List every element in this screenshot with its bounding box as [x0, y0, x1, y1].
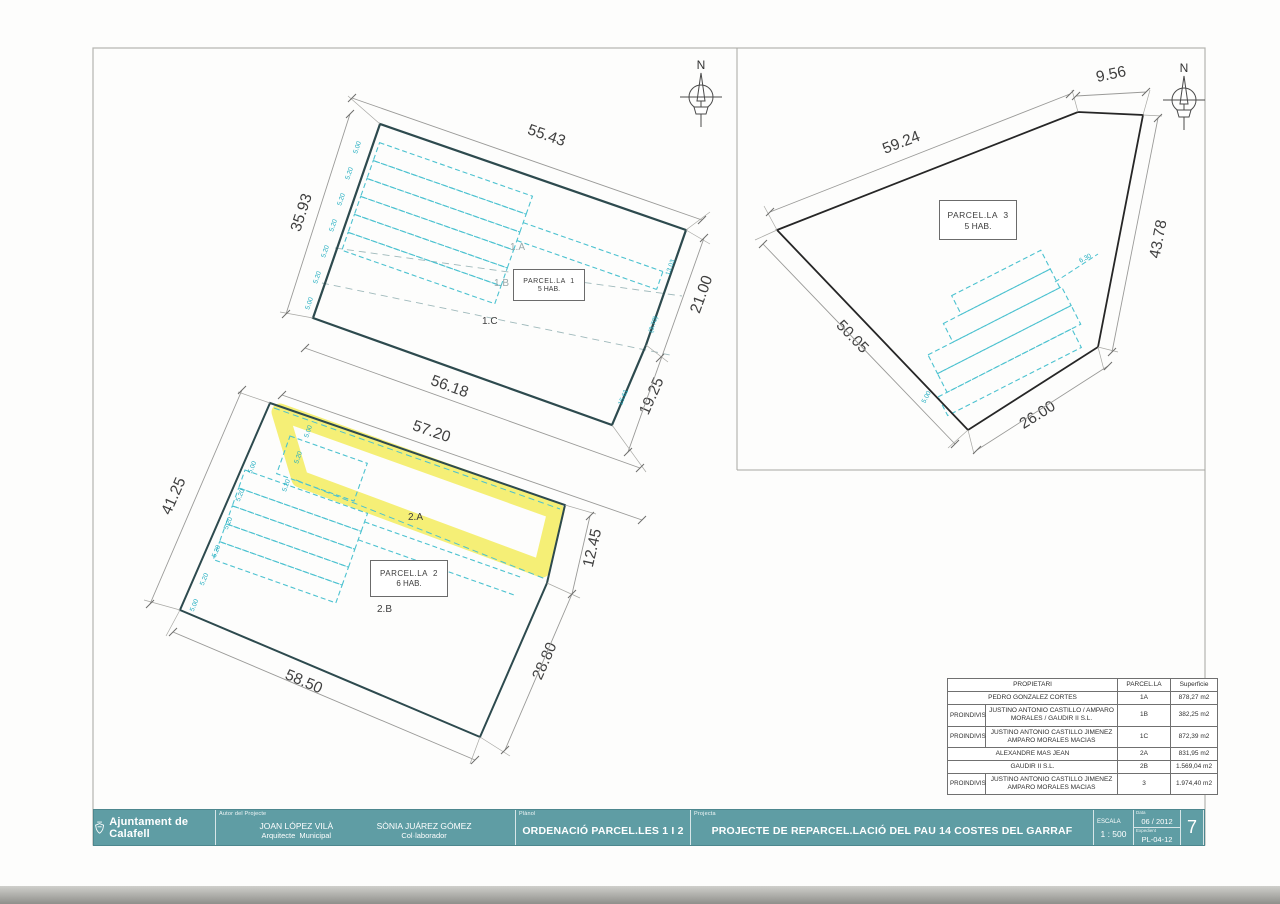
small-dim: 6.30: [1078, 252, 1093, 264]
table-header-row: PROPIETARI PARCEL.LA Superficie: [948, 679, 1218, 692]
small-dim: 15.61: [617, 388, 630, 406]
date-value: 06 / 2012: [1141, 817, 1172, 827]
planol-label: Plànol: [519, 811, 536, 817]
escala-cell: ESCALA 1 : 500: [1094, 810, 1134, 845]
owner-name: ALEXANDRE MAS JEAN: [948, 747, 1118, 760]
dim-label: 56.18: [428, 372, 470, 401]
north-arrow-icon: N: [1163, 61, 1205, 130]
parcel-3-label-box: PARCEL.LA 3 5 HAB.: [939, 200, 1017, 240]
small-dim: 5.20: [336, 192, 347, 207]
owner-name: JUSTINO ANTONIO CASTILLO JIMENEZ AMPARO …: [986, 726, 1118, 747]
projecte-title: PROJECTE DE REPARCEL.LACIÓ DEL PAU 14 CO…: [712, 825, 1073, 837]
author-role: Col·laborador: [401, 831, 446, 840]
date-label: Data: [1136, 810, 1146, 815]
projecte-cell: Projecta PROJECTE DE REPARCEL.LACIÓ DEL …: [691, 810, 1094, 845]
owner-name: PEDRO GONZALEZ CORTES: [948, 692, 1118, 705]
date-half: Data 06 / 2012: [1134, 810, 1180, 828]
table-row: PEDRO GONZALEZ CORTES 1A 878,27 m2: [948, 692, 1218, 705]
dim-label: 43.78: [1147, 218, 1171, 259]
parcel-code: 1B: [1118, 705, 1171, 726]
parcel-subtitle: 5 HAB.: [965, 221, 992, 231]
small-dim: 5.00: [247, 460, 259, 475]
authors: JOAN LÓPEZ VILÀ Arquitecte Municipal SÒN…: [216, 821, 515, 840]
parcel-1-label-box: PARCEL.LA 1 5 HAB.: [513, 269, 585, 301]
header-superficie: Superficie: [1171, 679, 1218, 692]
owner-prefix: PROINDIVIS: [948, 774, 986, 795]
small-dim: (3.70): [648, 315, 660, 333]
parcel-area: 1.974,40 m2: [1171, 774, 1218, 795]
parcel-1: 1.A 1.B 1.C 5.00 5.20 5.20 5.20 5.20 5.2…: [288, 121, 717, 425]
small-dim: 5.20: [320, 244, 331, 259]
building-strips: [342, 143, 672, 353]
small-dim: 5.20: [281, 478, 292, 493]
author-name: JOAN LÓPEZ VILÀ: [259, 821, 333, 831]
parcel-3: 6.30 5.00 59.24 9.56 43.78 50.05 26.00: [777, 63, 1171, 433]
ownership-table: PROPIETARI PARCEL.LA Superficie PEDRO GO…: [947, 678, 1218, 795]
sheet-number: 7: [1187, 817, 1197, 838]
owner-prefix: PROINDIVIS: [948, 726, 986, 747]
small-dim: 5.00: [304, 296, 315, 311]
small-dim: 5.00: [189, 598, 201, 613]
parcel-code: 2A: [1118, 747, 1171, 760]
parcel-code: 2B: [1118, 760, 1171, 773]
dim-label: 58.50: [283, 666, 326, 697]
table-row: PROINDIVIS JUSTINO ANTONIO CASTILLO / AM…: [948, 705, 1218, 726]
author-role: Arquitecte Municipal: [261, 831, 331, 840]
zone-label: 1.A: [510, 242, 525, 253]
owner-prefix: PROINDIVIS: [948, 705, 986, 726]
header-parcella: PARCEL.LA: [1118, 679, 1171, 692]
dim-label: 55.43: [525, 121, 567, 150]
owner-name: JUSTINO ANTONIO CASTILLO JIMENEZ AMPARO …: [986, 774, 1118, 795]
header-propietari: PROPIETARI: [948, 679, 1118, 692]
logo-cell: Ajuntament de Calafell: [94, 810, 216, 845]
scan-edge-shadow: [0, 886, 1280, 904]
parcel-area: 878,27 m2: [1171, 692, 1218, 705]
small-dim: 5.00: [352, 140, 363, 155]
zone-label: 1.C: [482, 316, 498, 327]
logo-text: Ajuntament de Calafell: [109, 816, 215, 840]
table-row: PROINDIVIS JUSTINO ANTONIO CASTILLO JIME…: [948, 774, 1218, 795]
small-dim: 5.20: [199, 572, 211, 587]
parcel-area: 872,39 m2: [1171, 726, 1218, 747]
parcel-subtitle: 5 HAB.: [538, 286, 560, 293]
inset-divider: [737, 48, 1205, 470]
calafell-logo-icon: [94, 820, 105, 836]
small-dim: 13.03: [665, 258, 677, 276]
small-dim: 5.20: [223, 516, 235, 531]
north-arrow-icon: N: [680, 58, 722, 127]
dim-label: 12.45: [580, 527, 605, 569]
dim-label: 59.24: [880, 128, 923, 158]
zone-divider-lines: [322, 248, 682, 355]
north-label: N: [697, 58, 706, 72]
small-dim: 5.20: [312, 270, 323, 285]
dim-label: 41.25: [158, 475, 189, 517]
parcel-code: 1A: [1118, 692, 1171, 705]
parcel-area: 831,95 m2: [1171, 747, 1218, 760]
parcel-3-outline: [777, 112, 1143, 430]
parcel-code: 3: [1118, 774, 1171, 795]
zone-label: 2.A: [408, 512, 423, 523]
author-cell: Autor del Projecte JOAN LÓPEZ VILÀ Arqui…: [216, 810, 516, 845]
scanned-plan-sheet: 1.A 1.B 1.C 5.00 5.20 5.20 5.20 5.20 5.2…: [0, 0, 1280, 904]
zone-label: 2.B: [377, 604, 392, 615]
author-name: SÒNIA JUÁREZ GÓMEZ: [377, 821, 472, 831]
escala-label: ESCALA: [1097, 819, 1121, 825]
building-strips: [900, 249, 1090, 415]
dim-label: 28.80: [529, 640, 560, 683]
parcel-2-label-box: PARCEL.LA 2 6 HAB.: [370, 560, 448, 597]
table-row: GAUDIR II S.L. 2B 1.569,04 m2: [948, 760, 1218, 773]
parcel-subtitle: 6 HAB.: [396, 579, 421, 588]
parcel-area: 382,25 m2: [1171, 705, 1218, 726]
owner-name: GAUDIR II S.L.: [948, 760, 1118, 773]
north-label: N: [1180, 61, 1189, 75]
parcel-title: PARCEL.LA 3: [947, 210, 1008, 220]
dim-label: 21.00: [687, 273, 716, 316]
owner-name: JUSTINO ANTONIO CASTILLO / AMPARO MORALE…: [986, 705, 1118, 726]
author-label: Autor del Projecte: [219, 811, 266, 817]
date-ref-cell: Data 06 / 2012 Expedient PL-04-12: [1134, 810, 1181, 845]
planol-title: ORDENACIÓ PARCEL.LES 1 I 2: [522, 825, 683, 837]
dim-label: 9.56: [1095, 63, 1128, 86]
small-dim: 5.20: [328, 218, 339, 233]
small-dim: 5.20: [344, 166, 355, 181]
title-block: Ajuntament de Calafell Autor del Project…: [93, 809, 1205, 846]
table-row: PROINDIVIS JUSTINO ANTONIO CASTILLO JIME…: [948, 726, 1218, 747]
dim-label: 35.93: [288, 192, 316, 234]
parcel-area: 1.569,04 m2: [1171, 760, 1218, 773]
projecte-label: Projecta: [694, 811, 716, 817]
ref-value: PL-04-12: [1142, 835, 1173, 845]
dim-label: 26.00: [1017, 397, 1059, 432]
parcel-title: PARCEL.LA 1: [523, 278, 574, 285]
dim-label: 19.25: [636, 375, 667, 417]
author-1: JOAN LÓPEZ VILÀ Arquitecte Municipal: [259, 821, 333, 840]
sheet-number-cell: 7: [1181, 810, 1204, 845]
ref-half: Expedient PL-04-12: [1134, 828, 1180, 846]
planol-cell: Plànol ORDENACIÓ PARCEL.LES 1 I 2: [516, 810, 691, 845]
ref-label: Expedient: [1136, 828, 1156, 833]
parcel-1-outline: [313, 124, 686, 425]
parcel-title: PARCEL.LA 2: [380, 569, 438, 578]
escala-value: 1 : 500: [1101, 829, 1127, 839]
author-2: SÒNIA JUÁREZ GÓMEZ Col·laborador: [377, 821, 472, 840]
small-dim: 5.20: [211, 544, 223, 559]
table-row: ALEXANDRE MAS JEAN 2A 831,95 m2: [948, 747, 1218, 760]
parcel-code: 1C: [1118, 726, 1171, 747]
zone-label: 1.B: [494, 278, 509, 289]
